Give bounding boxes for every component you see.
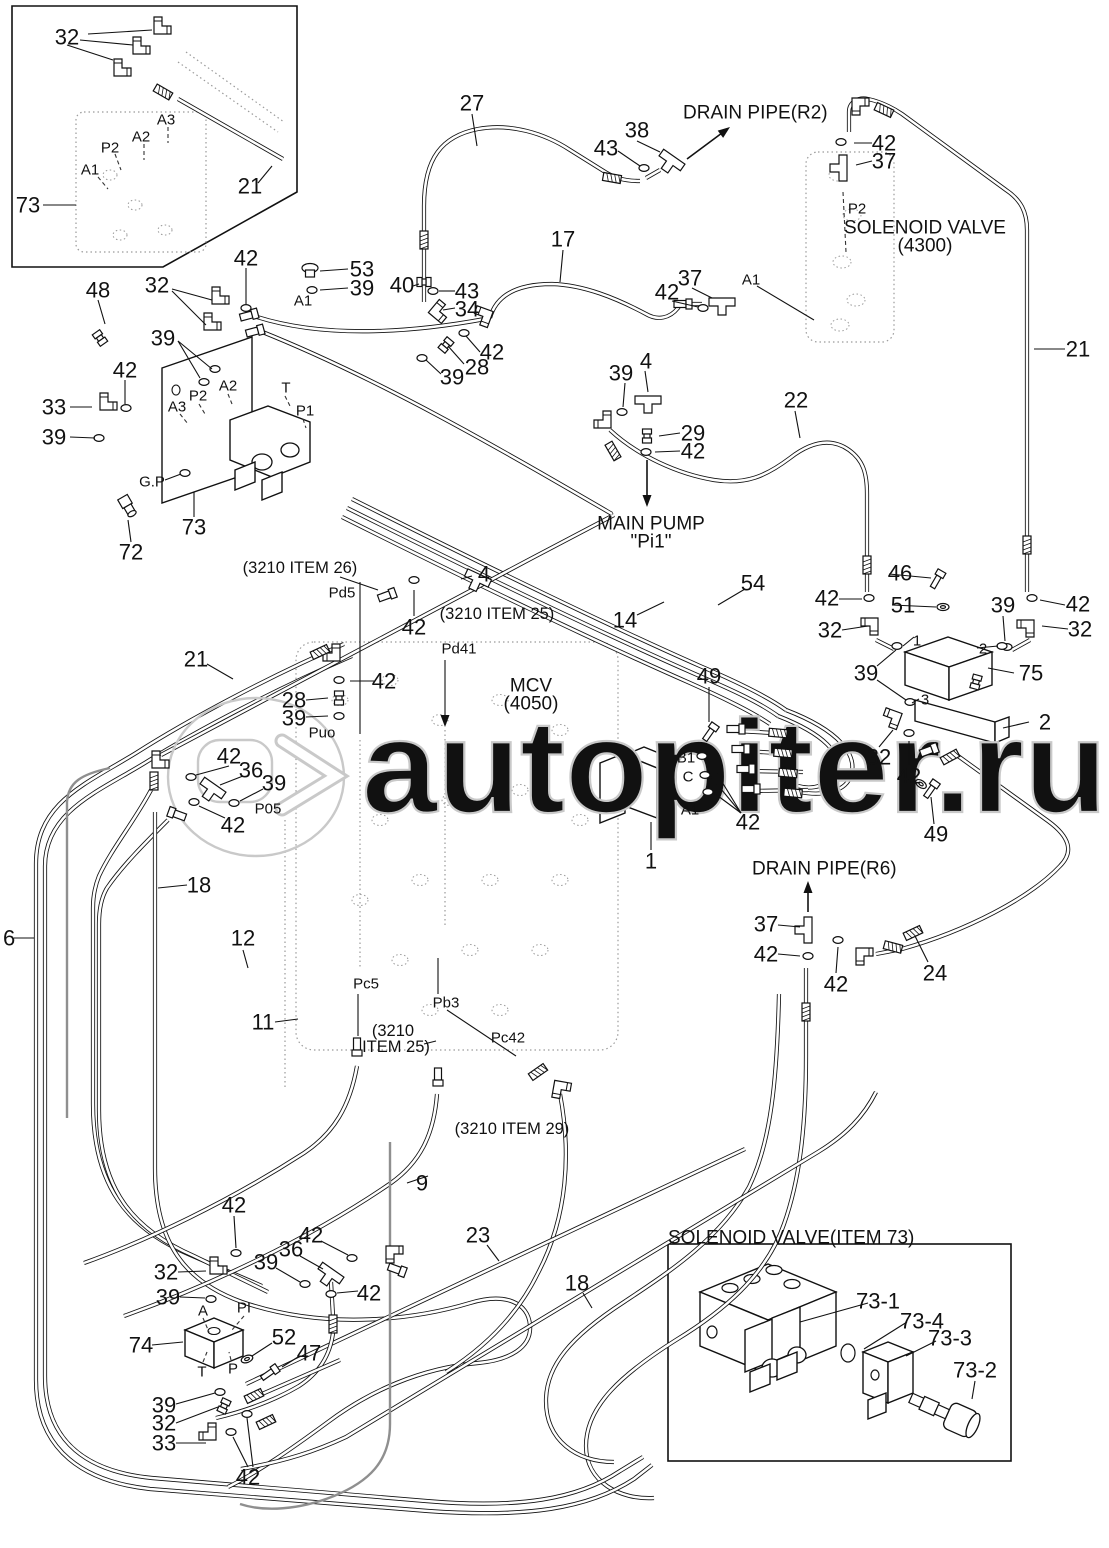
fitting-hosefit <box>727 724 745 734</box>
part-callout: 37 <box>754 912 778 937</box>
fitting-ring <box>700 772 710 779</box>
fitting-bolt <box>929 569 946 590</box>
part-callout: 75 <box>1019 661 1043 686</box>
watermark: autopiter.ru <box>168 693 1107 856</box>
leader-line-81 <box>337 1291 358 1293</box>
fitting-washer <box>937 604 949 611</box>
fitting-ring <box>241 305 251 312</box>
part-callout: 32 <box>1068 617 1092 642</box>
part-callout: (3210 ITEM 26) <box>243 559 358 577</box>
part-callout: 17 <box>551 227 575 252</box>
fitting-oring <box>841 1344 855 1362</box>
part-callout: 42 <box>221 813 245 838</box>
leader-line-104 <box>128 520 131 542</box>
fitting-tee <box>635 396 661 413</box>
leader-line-2 <box>88 30 152 34</box>
part-callout: 42 <box>736 810 760 835</box>
leader-line-93 <box>172 291 206 325</box>
leader-line-92 <box>172 289 212 300</box>
part-callout: A2 <box>219 377 237 394</box>
item73-top-port-3 <box>784 1280 800 1289</box>
fitting-ring <box>409 577 419 584</box>
fitting-ring <box>892 643 902 650</box>
fitting-elbow <box>1017 620 1034 637</box>
fitting-ring <box>417 355 427 362</box>
inset-block-dot-0 <box>103 170 117 180</box>
fitting-ring <box>347 1255 357 1262</box>
part-callout: 42 <box>815 586 839 611</box>
part-callout: 14 <box>613 608 637 633</box>
leader-line-9 <box>856 161 872 165</box>
leader-line-24 <box>795 411 800 438</box>
part-callout: 34 <box>455 297 479 322</box>
pipe-core-36 <box>178 99 283 159</box>
solenoid-4300-dot-4 <box>831 319 849 331</box>
fitting-ring <box>428 288 438 295</box>
fitting-braid <box>244 1389 264 1404</box>
item73-top-port-2 <box>766 1266 782 1275</box>
mcv-dotted-port-15 <box>462 945 478 956</box>
part-callout: Pc5 <box>353 975 379 992</box>
leader-line-83 <box>176 1407 218 1423</box>
fitting-braid <box>802 1003 810 1021</box>
fitting-braid <box>1023 536 1031 554</box>
fitting-ring <box>300 1281 310 1288</box>
part-callout: Pb3 <box>433 994 460 1011</box>
fitting-elbow <box>133 37 150 54</box>
part-callout: 39 <box>156 1285 180 1310</box>
fitting-ring <box>180 470 190 477</box>
part-callout: 42 <box>222 1193 246 1218</box>
leader-line-66 <box>243 950 248 968</box>
leader-line-80 <box>321 1241 348 1255</box>
fitting-elbow <box>210 1257 227 1274</box>
part-callout: 42 <box>754 942 778 967</box>
item73-2-cartridge <box>905 1385 983 1440</box>
leader-line-32 <box>877 650 896 666</box>
fitting-ring <box>199 379 209 386</box>
leader-line-73 <box>178 1271 206 1272</box>
leader-line-75 <box>152 1342 183 1345</box>
fitting-braid <box>420 231 428 249</box>
part-callout: PI <box>237 1299 251 1316</box>
fitting-ring <box>997 643 1007 650</box>
leader-line-65 <box>158 885 187 888</box>
arrowhead-icon-2 <box>804 881 813 893</box>
part-callout: P1 <box>296 402 314 419</box>
fitting-braid <box>329 1315 337 1333</box>
fitting-ring <box>326 1291 336 1298</box>
leader-line-90 <box>972 1381 975 1399</box>
part-callout: 21 <box>238 174 262 199</box>
fitting-braid <box>150 772 158 790</box>
part-callout: 12 <box>231 926 255 951</box>
part-callout: 23 <box>466 1223 490 1248</box>
fitting-elbow <box>386 1246 403 1263</box>
part-callout: 42 <box>372 669 396 694</box>
part-callout: 32 <box>818 618 842 643</box>
inset-block-dot-2 <box>158 225 172 235</box>
fitting-hosefit <box>352 1038 362 1056</box>
fitting-tee <box>313 1262 344 1291</box>
dashed-line-8 <box>285 396 290 406</box>
part-callout: 39 <box>254 1250 278 1275</box>
valve-connector-2 <box>262 472 282 500</box>
fitting-nip <box>335 691 344 705</box>
part-callout: 37 <box>872 149 896 174</box>
part-callout: DRAIN PIPE(R2) <box>683 103 828 124</box>
part-callout: 3 <box>921 691 929 708</box>
part-callout: 21 <box>184 647 208 672</box>
part-callout: 32 <box>145 273 169 298</box>
part-callout: 11 <box>252 1010 275 1035</box>
fitting-hosefit <box>742 784 760 794</box>
part-callout: 47 <box>297 1341 321 1366</box>
part-callout: 32 <box>867 745 891 770</box>
part-callout: 42 <box>1066 592 1090 617</box>
part-callout: A3 <box>168 398 186 415</box>
part-callout: 2 <box>1039 710 1051 735</box>
fitting-elbow <box>856 948 873 965</box>
part-callout: A3 <box>157 111 175 128</box>
part-callout: B1 <box>677 749 695 766</box>
part-callout: A1 <box>81 161 99 178</box>
leader-line-28 <box>842 626 868 630</box>
part-callout: 42 <box>681 439 705 464</box>
fitting-ring <box>334 677 344 684</box>
fitting-ring <box>864 595 874 602</box>
leader-line-21 <box>645 371 648 392</box>
plate-hole <box>172 385 180 395</box>
piping-diagram: autopiter.ru 32A3A2P2A12173273843DRAIN P… <box>0 0 1109 1548</box>
dashed-line-3 <box>115 154 121 170</box>
valve-cap-2 <box>281 443 299 457</box>
part-callout: 39 <box>282 706 306 731</box>
part-callout: 37 <box>678 266 702 291</box>
fitting-ring <box>1027 595 1037 602</box>
fitting-tee <box>795 917 812 943</box>
part-callout: 39 <box>609 361 633 386</box>
item73-4-port <box>871 1370 879 1380</box>
part-callout: 73-3 <box>928 1326 972 1351</box>
pipe-23 <box>260 331 612 514</box>
part-callout: 42 <box>299 1223 323 1248</box>
fitting-ring <box>617 409 627 416</box>
fitting-elbow <box>100 393 117 410</box>
leader-line-56 <box>207 664 233 679</box>
part-callout: 4 <box>478 562 490 587</box>
part-callout: 28 <box>465 355 489 380</box>
part-callout: 73-1 <box>856 1289 900 1314</box>
pipe-27 <box>155 812 530 1487</box>
part-callout: 27 <box>460 91 484 116</box>
part-callout: 32 <box>154 1260 178 1285</box>
part-callout: 39 <box>42 425 66 450</box>
fitting-braid <box>528 1064 547 1081</box>
fitting-ring <box>334 713 344 720</box>
fitting-ring <box>242 1411 252 1418</box>
part-callout: P2 <box>848 200 866 217</box>
mcv-dotted-port-11 <box>412 875 428 886</box>
solenoid-4300-dot-2 <box>833 256 851 268</box>
part-callout: 42 <box>824 972 848 997</box>
part-callout: T <box>281 379 290 396</box>
solenoid-4300-dot-3 <box>847 294 865 306</box>
fitting-nip <box>217 1398 231 1414</box>
block-74-port <box>208 1328 220 1335</box>
pipe-core-5 <box>1012 640 1030 650</box>
fitting-hosefit <box>377 588 397 604</box>
part-callout: 49 <box>697 664 721 689</box>
solenoid-4300-dotted-outline <box>806 152 894 342</box>
leader-line-30 <box>1042 626 1068 629</box>
part-callout: 39 <box>151 326 175 351</box>
part-callout: 42 <box>234 246 258 271</box>
part-callout: 42 <box>402 615 426 640</box>
fitting-hosefit <box>245 324 265 338</box>
fitting-ring <box>904 730 914 737</box>
part-callout: 18 <box>565 1271 589 1296</box>
leader-line-59 <box>306 716 328 717</box>
fitting-braid <box>863 556 871 574</box>
arrow-line-0 <box>687 130 726 159</box>
part-callout: 48 <box>86 278 110 303</box>
leader-line-22 <box>659 433 680 436</box>
mcv-dotted-port-14 <box>392 955 408 966</box>
leader-line-29 <box>1040 600 1065 605</box>
leader-line-101 <box>70 437 95 438</box>
part-callout: A1 <box>294 292 312 309</box>
part-callout: 9 <box>416 1171 428 1196</box>
thin-line-5 <box>757 286 814 320</box>
part-callout: 40 <box>390 273 414 298</box>
part-callout: (3210 ITEM 25) <box>440 605 555 623</box>
part-callout: 42 <box>113 358 137 383</box>
part-callout: ITEM 25) <box>362 1038 430 1056</box>
leader-line-15 <box>466 336 480 352</box>
leader-line-79 <box>276 1268 300 1282</box>
leader-line-96 <box>320 288 348 290</box>
pipe-core-7 <box>876 640 894 649</box>
part-callout: 73 <box>16 193 40 218</box>
mcv-dotted-port-16 <box>532 945 548 956</box>
fitting-ring <box>229 800 239 807</box>
part-callout: Puo <box>309 724 336 741</box>
gray-hose-0 <box>67 768 110 1118</box>
part-callout: 42 <box>357 1281 381 1306</box>
part-callout: 42 <box>236 1465 260 1490</box>
fitting-elbow <box>428 299 452 323</box>
fitting-braid <box>903 926 923 941</box>
item73-4-connector <box>868 1393 886 1419</box>
fitting-braid <box>602 172 621 183</box>
part-callout: Pd5 <box>329 584 356 601</box>
fitting-ring <box>186 774 196 781</box>
part-callout: 4 <box>640 349 652 374</box>
leader-line-11 <box>560 250 563 282</box>
part-callout: 42 <box>897 764 921 789</box>
fitting-ring <box>836 139 846 146</box>
part-callout: 39 <box>991 593 1015 618</box>
fitting-elbow <box>204 313 221 330</box>
fitting-tee <box>654 149 685 178</box>
fitting-ring <box>803 953 813 960</box>
fitting-ring <box>215 1389 225 1396</box>
fitting-braid <box>774 748 793 758</box>
leader-line-14 <box>443 308 455 310</box>
part-callout: "Pi1" <box>631 532 672 553</box>
fitting-tee <box>709 298 735 315</box>
part-callout: 42 <box>655 280 679 305</box>
leader-line-76 <box>252 1343 272 1356</box>
fitting-ring <box>189 799 199 806</box>
arrowhead-icon-1 <box>643 495 652 507</box>
mcv-dotted-port-10 <box>352 895 368 906</box>
leader-line-16 <box>448 346 464 364</box>
part-callout: Pc42 <box>491 1029 525 1046</box>
part-callout: 33 <box>152 1431 176 1456</box>
part-callout: DRAIN PIPE(R6) <box>752 859 897 880</box>
part-callout: 32 <box>55 25 79 50</box>
part-callout: 22 <box>784 388 808 413</box>
part-callout: 52 <box>272 1325 296 1350</box>
leader-line-17 <box>426 360 441 374</box>
fitting-ring <box>121 405 131 412</box>
fitting-braid <box>769 728 788 738</box>
fitting-ring <box>231 1250 241 1257</box>
inset-block-dot-3 <box>113 230 127 240</box>
part-callout: P <box>228 1360 238 1377</box>
item73-top-port-0 <box>722 1284 738 1293</box>
part-callout: G.P <box>139 473 165 490</box>
fitting-ring <box>698 305 708 312</box>
leader-line-1 <box>80 40 133 45</box>
fitting-bolt <box>259 1364 280 1382</box>
fitting-elbow <box>199 1423 216 1440</box>
fitting-ring <box>459 330 469 337</box>
fitting-ring <box>226 1429 236 1436</box>
fitting-ring <box>641 449 651 456</box>
part-callout: P2 <box>101 139 119 156</box>
fitting-hosefit <box>433 1068 443 1086</box>
leader-line-78 <box>300 1256 323 1269</box>
part-callout: (4300) <box>898 236 953 257</box>
fitting-elbow <box>852 98 869 115</box>
part-callout: 46 <box>888 561 912 586</box>
leader-line-74 <box>180 1297 205 1298</box>
fitting-hosefit <box>737 764 755 774</box>
part-callout: Pd41 <box>441 640 476 657</box>
dotted-line-4 <box>178 62 278 132</box>
part-callout: (3210 ITEM 29) <box>455 1120 570 1138</box>
leader-line-23 <box>655 451 680 452</box>
leader-line-51 <box>836 947 838 973</box>
inset-block-dot-1 <box>128 200 142 210</box>
part-callout: 49 <box>924 822 948 847</box>
part-callout: 21 <box>1066 337 1090 362</box>
part-callout: 18 <box>187 873 211 898</box>
leader-line-58 <box>306 698 328 700</box>
fitting-cap <box>302 264 318 278</box>
leader-line-20 <box>623 383 625 407</box>
pipe-core-2 <box>490 284 680 318</box>
fitting-elbow <box>212 287 229 304</box>
fitting-ring <box>639 165 649 172</box>
fitting-ring <box>703 789 713 796</box>
part-callout: 43 <box>594 136 618 161</box>
part-callout: 72 <box>119 540 143 565</box>
part-callout: 2 <box>979 640 987 657</box>
leader-line-95 <box>320 269 348 271</box>
fitting-hosefit <box>732 744 750 754</box>
part-callout: A2 <box>132 128 150 145</box>
part-callout: 51 <box>891 593 915 618</box>
fitting-braid <box>605 441 621 461</box>
fitting-ring <box>833 937 843 944</box>
fitting-braid <box>153 84 173 100</box>
mcv-dotted-port-13 <box>552 875 568 886</box>
pipe-core-1 <box>646 170 660 178</box>
fitting-braid <box>784 788 803 798</box>
fitting-elbow <box>594 411 611 428</box>
fitting-braid <box>779 768 798 778</box>
item73-side-port <box>707 1326 717 1338</box>
fitting-nip <box>92 330 107 347</box>
fitting-nip <box>417 278 431 287</box>
leader-line-43 <box>637 602 664 615</box>
leader-line-31 <box>1003 616 1005 641</box>
part-callout: 39 <box>262 771 286 796</box>
part-callout: 39 <box>350 276 374 301</box>
part-callout: 73-2 <box>953 1358 997 1383</box>
part-callout: 42 <box>217 744 241 769</box>
part-callout: A1 <box>742 271 760 288</box>
mcv-dotted-port-12 <box>482 875 498 886</box>
leader-line-7 <box>618 151 640 166</box>
part-callout: 36 <box>239 758 263 783</box>
part-callout: 39 <box>440 365 464 390</box>
part-callout: (4050) <box>504 694 559 715</box>
fitting-elbow <box>114 59 131 76</box>
part-callout: C <box>683 768 694 785</box>
watermark-text: autopiter.ru <box>362 693 1107 840</box>
part-callout: 39 <box>854 661 878 686</box>
part-callout: A1 <box>681 801 699 818</box>
fitting-nip <box>643 429 652 443</box>
fitting-elbow <box>154 17 171 34</box>
leader-line-50 <box>778 954 800 956</box>
part-callout: 54 <box>741 571 765 596</box>
leader-line-67 <box>275 1019 298 1022</box>
part-callout: P05 <box>255 800 282 817</box>
part-callout: 33 <box>42 395 66 420</box>
part-callout: 1 <box>645 849 657 874</box>
pipe-core-23 <box>260 331 612 514</box>
leader-line-91 <box>98 300 105 324</box>
fitting-plug <box>118 494 138 518</box>
part-callout: T <box>197 1363 206 1380</box>
leader-line-85 <box>233 1437 248 1467</box>
part-callout: 6 <box>3 926 15 951</box>
pipe-core-27 <box>155 812 530 1487</box>
part-callout: SOLENOID VALVE(ITEM 73) <box>668 1228 914 1249</box>
arrowhead-icon-0 <box>718 123 733 137</box>
fitting-hosefit <box>167 807 187 823</box>
fitting-tee <box>830 155 847 181</box>
fitting-braid <box>256 1415 276 1430</box>
fitting-ring <box>697 753 707 760</box>
leader-line-86 <box>247 1418 253 1467</box>
